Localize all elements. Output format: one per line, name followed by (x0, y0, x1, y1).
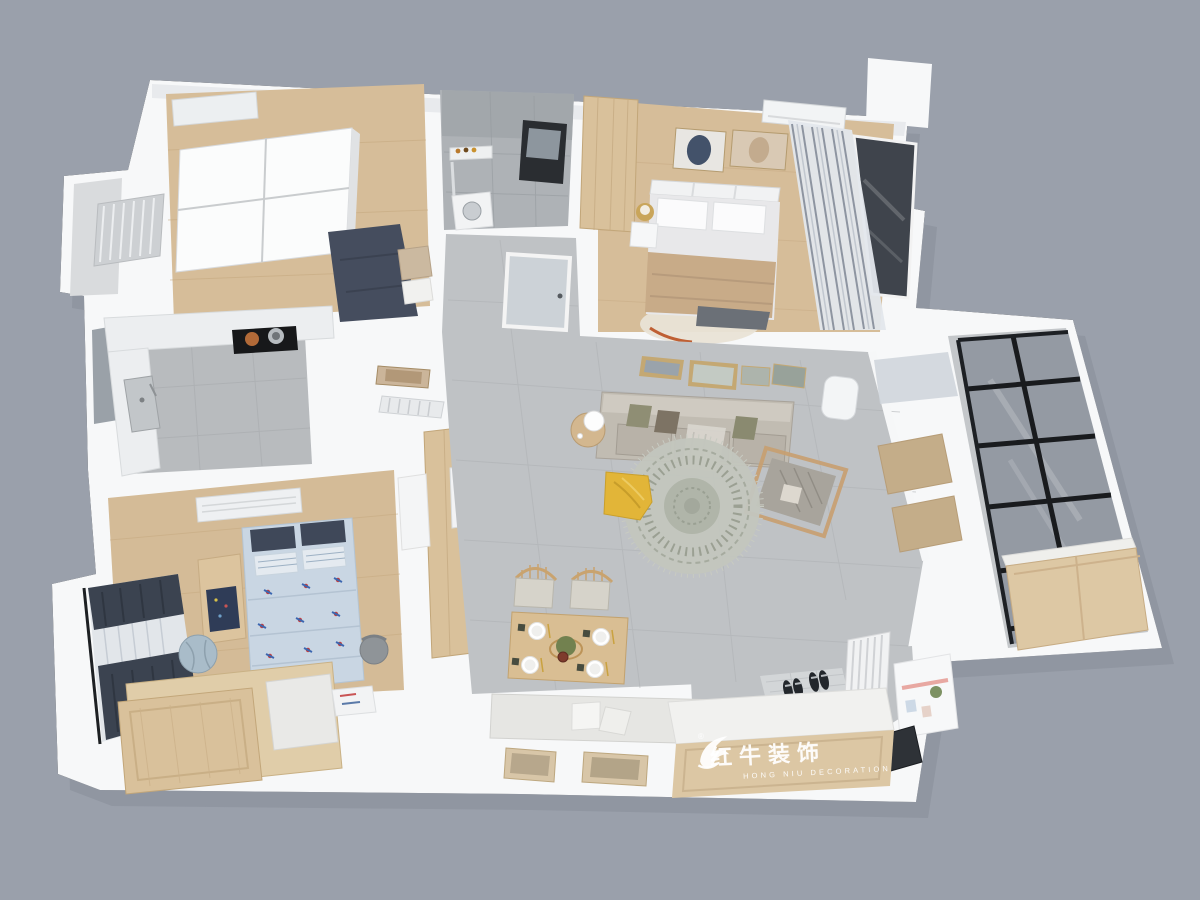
hallway-art (376, 366, 430, 388)
tan-pillow (398, 246, 432, 280)
striped-pillow-1 (254, 552, 298, 576)
wall-art-1 (673, 128, 726, 172)
navy-pillow-1 (250, 526, 296, 552)
desk-chair (360, 636, 388, 664)
shower-bar (452, 162, 454, 196)
dining-table (508, 612, 628, 684)
washing-machine (452, 192, 493, 230)
white-pillow (402, 278, 433, 304)
master-bed (645, 180, 780, 330)
room-master-bedroom (580, 96, 916, 344)
door-handle (558, 294, 563, 299)
olive-pillow-2 (732, 416, 758, 440)
table-lamp (584, 411, 604, 431)
toy-bin (206, 586, 240, 632)
pegboard (894, 654, 958, 738)
shower-shelf (450, 146, 492, 160)
floorplan-svg (0, 0, 1200, 900)
bench-pillow-1 (568, 700, 604, 732)
mirror-glass (526, 128, 561, 160)
copper-pot (245, 332, 259, 346)
desk-globe (179, 635, 217, 673)
room-bathroom (440, 90, 574, 230)
wall-art-2 (730, 130, 788, 170)
pillow-left (656, 198, 708, 230)
shoe-cabinet-bench (668, 688, 894, 798)
balcony-cabinet (1002, 538, 1148, 650)
top-right-wall-block (866, 58, 932, 128)
nightstand (630, 222, 658, 248)
floor-standing-ac (821, 375, 860, 421)
kids-room-door (398, 474, 430, 550)
room-second-bedroom (166, 84, 433, 322)
wardrobe-top (118, 688, 262, 794)
olive-pillow (626, 404, 652, 428)
frosted-glass-door (504, 254, 570, 330)
brown-pillow (654, 410, 680, 434)
yellow-beanbag (604, 472, 652, 520)
platform-pad (266, 674, 338, 750)
floorplan-render: ® 红牛装饰 HONG NIU DECORATION (0, 0, 1200, 900)
pegboard-plant (930, 686, 942, 698)
stationery-tray (332, 686, 376, 716)
striped-pillow-2 (302, 546, 346, 570)
navy-pillow-2 (300, 520, 346, 546)
cooktop (232, 326, 298, 354)
pillow-right (712, 202, 766, 234)
master-wardrobe (580, 96, 638, 232)
